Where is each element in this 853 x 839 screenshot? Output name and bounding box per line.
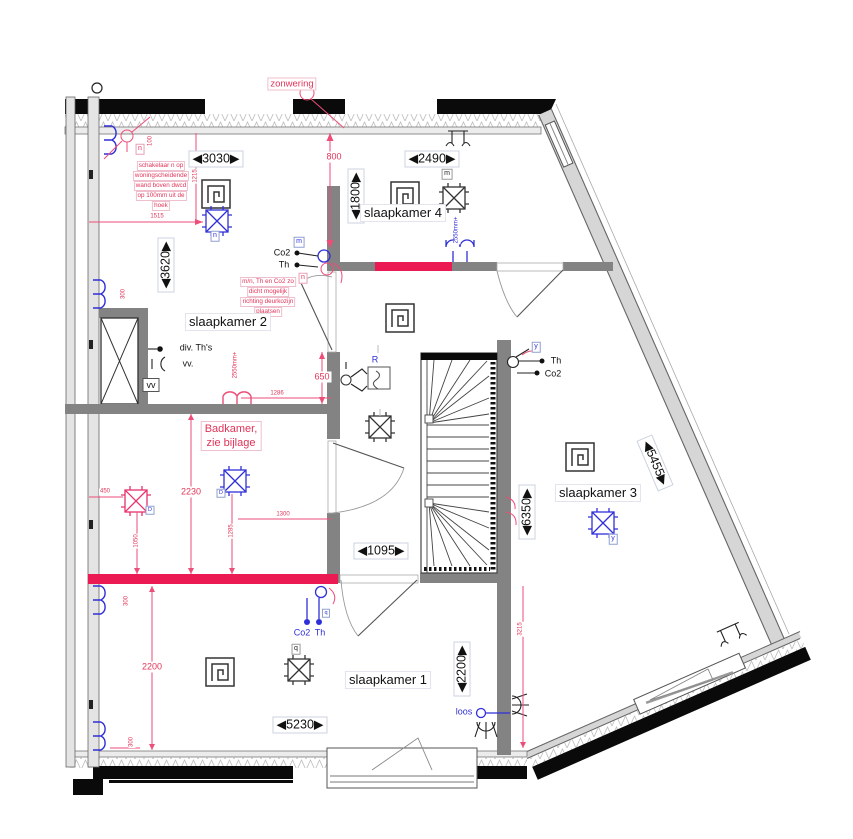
dim-2200: ◀2200▶ [454, 641, 471, 696]
note-sensor-placement: m/n, Th en Co2 zo dicht mogelijk richtin… [240, 277, 296, 317]
red-dim-300: 300 [124, 595, 131, 607]
dim-6350: ◀6350▶ [519, 484, 536, 539]
room-label-slaapkamer-3: slaapkamer 3 [555, 484, 641, 502]
dim-3030: ◀3030▶ [188, 151, 243, 168]
dim-1095: ◀1095▶ [353, 543, 408, 560]
exterior-wall-diagonal-bottom [527, 632, 811, 780]
red-dim-1515: 1515 [149, 214, 164, 221]
tag-q: q [322, 609, 330, 618]
red-dim-2230: 2230 [179, 487, 203, 498]
room-label-slaapkamer-4: slaapkamer 4 [360, 204, 446, 222]
red-dim-2200: 2200 [140, 662, 164, 673]
new-wall-red-bathroom [88, 574, 338, 584]
label-r: R [371, 355, 380, 366]
red-dim-1300: 1300 [275, 512, 290, 519]
staircase [421, 353, 497, 573]
shaft [99, 308, 148, 404]
dim-5230: ◀5230▶ [272, 717, 327, 734]
label-2550mm: 2550mm+ [233, 351, 240, 380]
tag-n: n [136, 144, 145, 155]
label-co2: Co2 [293, 628, 312, 639]
red-dim-800: 800 [324, 152, 343, 163]
tag-y: y [532, 342, 541, 353]
tag-q: q [292, 644, 301, 655]
red-dim-300: 300 [121, 288, 128, 300]
tag-m: m [442, 169, 453, 180]
label-vv-period: vv. [182, 359, 195, 370]
label-co2: Co2 [544, 369, 563, 380]
red-dim-100: 100 [148, 135, 155, 147]
room-label-badkamer: Badkamer, zie bijlage [201, 421, 262, 451]
red-dim-300: 300 [129, 736, 136, 748]
note-switch: schakelaar n op woningscheidende wand bo… [133, 161, 189, 211]
label-th: Th [314, 628, 327, 639]
window-bottom [327, 738, 477, 788]
label-th: Th [550, 356, 563, 367]
room-label-slaapkamer-1: slaapkamer 1 [345, 671, 431, 689]
red-dim-650: 650 [312, 372, 331, 383]
label-2550mm: 2550mm+ [454, 216, 461, 245]
red-dim-3215: 3215 [518, 621, 525, 636]
tag-y: y [609, 534, 618, 545]
label-th: Th [278, 260, 291, 271]
dim-3620: ◀3620▶ [158, 237, 175, 292]
note-zonwering: zonwering [267, 78, 316, 91]
tag-m: m [294, 237, 305, 248]
room-label-slaapkamer-2: slaapkamer 2 [185, 313, 271, 331]
door-badkamer [328, 441, 404, 513]
label-vv: vv [143, 378, 160, 392]
floor-plan: ◀3030▶ ◀2490▶ ◀1800▶ ◀3620▶ ◀1095▶ ◀5230… [0, 0, 853, 839]
exterior-wall-diagonal-right [539, 104, 789, 645]
door-slaapkamer2 [301, 272, 336, 352]
red-dim-1285: 1285 [229, 523, 236, 538]
door-slaapkamer1 [340, 575, 418, 636]
exterior-wall-top [65, 99, 556, 134]
tag-d: D [146, 506, 155, 515]
red-dim-1050: 1050 [134, 533, 141, 548]
red-dim-450: 450 [99, 489, 111, 496]
tag-n: n [299, 273, 308, 284]
dim-2490: ◀2490▶ [404, 151, 459, 168]
label-co2: Co2 [273, 248, 292, 259]
plan-drawing [0, 0, 853, 839]
red-dim-1215: 1215 [193, 168, 200, 183]
door-slaapkamer3 [497, 263, 563, 317]
exterior-wall-left [66, 83, 102, 767]
red-dim-1286: 1286 [269, 391, 284, 398]
label-loos: loos [455, 707, 474, 718]
tag-d: D [217, 489, 226, 498]
vent-valve-icon [121, 183, 618, 685]
tag-n: n [211, 231, 220, 242]
label-div-ths: div. Th's [179, 343, 213, 354]
exterior-wall-bottom [68, 738, 527, 795]
new-wall-red-top [375, 262, 452, 271]
